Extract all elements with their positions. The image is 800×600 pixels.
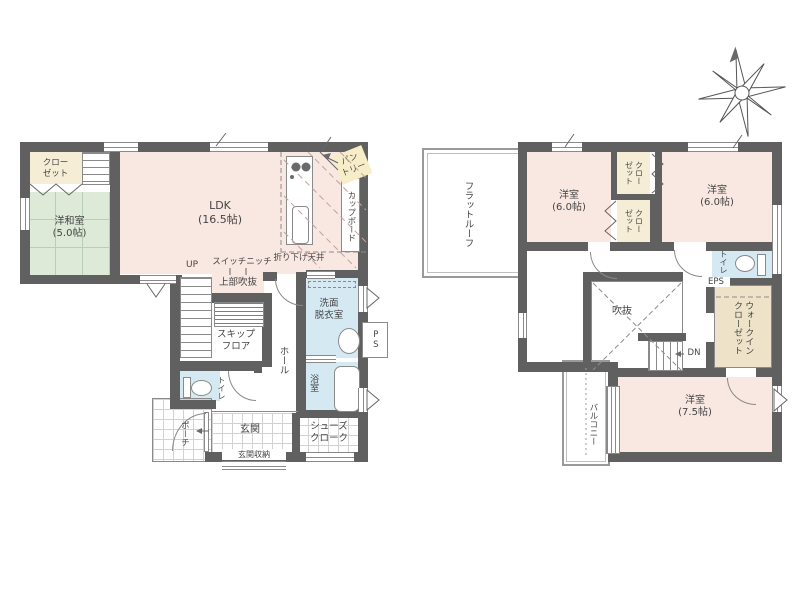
window (772, 386, 782, 412)
balcony-sliding-door (606, 386, 620, 454)
eps-label: EPS (702, 277, 730, 287)
window (772, 205, 782, 250)
bath-label: 浴室 (306, 366, 319, 400)
floorplan-canvas: クロー ゼット 洋和室 (5.0帖) LDK (16.5帖) パン トリー カッ… (0, 0, 800, 600)
wall (638, 333, 686, 341)
shoe-cloak-label: シューズ クローク (300, 419, 358, 447)
wall (170, 400, 216, 409)
window (210, 142, 268, 152)
toilet-bowl-1f (191, 380, 212, 396)
staircase-down (648, 341, 683, 371)
bedroom-c-label: 洋室 (7.5帖) (640, 390, 750, 424)
compass-icon (692, 40, 792, 142)
closet-label: クロー ゼット (29, 155, 82, 183)
casement-window-icon (367, 390, 379, 410)
window (306, 452, 354, 462)
window (104, 142, 138, 152)
door-swing (275, 279, 303, 306)
wall (170, 275, 180, 409)
wall (756, 368, 772, 377)
open-above-label: 上部吹抜 (212, 277, 264, 289)
down-label: DN (684, 348, 704, 358)
window (358, 388, 368, 412)
dropped-ceiling-label: 折り下げ天井 (266, 253, 332, 264)
wall (655, 152, 662, 242)
bedroom-b-label: 洋室 (6.0帖) (672, 181, 762, 213)
window (772, 250, 782, 274)
window (140, 275, 176, 284)
skip-floor-steps (214, 302, 264, 327)
entrance-label: 玄関 (226, 423, 274, 437)
bathtub (334, 366, 360, 412)
window (358, 286, 368, 312)
cupboard-label: カップボード (342, 181, 359, 251)
ps-label: PS (369, 325, 382, 355)
walk-in-closet-label: ウォークイン クローゼット (726, 292, 758, 364)
closet-b-label: クロー ゼット (621, 202, 646, 240)
wall (611, 152, 617, 200)
door-swing (228, 371, 256, 401)
entrance-storage-doors (222, 461, 286, 470)
skip-floor-label: スキップ フロア (208, 328, 264, 354)
wall (610, 242, 674, 251)
flat-roof-label: フラットルーフ (460, 166, 475, 262)
wall (706, 242, 772, 251)
casement-window-icon (367, 288, 379, 308)
entrance-storage-label: 玄関収納 (222, 449, 286, 460)
bedroom-a-label: 洋室 (6.0帖) (527, 186, 611, 218)
closet-a-label: クロー ゼット (621, 154, 646, 192)
wall (527, 242, 588, 251)
wall (583, 272, 683, 281)
entrance-step-line (212, 411, 298, 412)
toilet-1f-label: トイレ (215, 369, 227, 407)
toilet-tank-1f (183, 377, 191, 398)
japanese-room-label: 洋和室 (5.0帖) (29, 212, 110, 244)
wall (518, 362, 618, 372)
wall (772, 142, 782, 462)
wall (110, 142, 120, 275)
void-label: 吹抜 (600, 305, 644, 319)
porch-label: ポーチ (178, 411, 190, 457)
wall (608, 452, 782, 462)
toilet-2f-label: トイレ (717, 246, 729, 278)
washroom-counter (308, 281, 356, 288)
wall (292, 413, 300, 458)
up-label: UP (180, 261, 204, 271)
toilet-bowl-2f (735, 255, 755, 272)
ldk-label: LDK (16.5帖) (175, 197, 265, 229)
window (688, 142, 738, 152)
kitchen-sink (292, 206, 309, 244)
wall (611, 194, 655, 200)
window (518, 313, 527, 338)
wall (20, 142, 368, 152)
wall (583, 272, 591, 372)
sliding-door (306, 355, 336, 363)
sliding-door (307, 271, 335, 279)
switch-niche-label: スイッチニッチ (210, 257, 274, 267)
washbasin (338, 328, 360, 354)
wall (706, 342, 714, 368)
window (552, 142, 582, 152)
shelf-unit (82, 152, 110, 185)
toilet-tank-2f (757, 254, 766, 276)
washroom-label: 洗面 脱衣室 (302, 297, 356, 323)
balcony-label: バルコニー (586, 392, 599, 456)
hall-label: ホール (276, 339, 289, 381)
